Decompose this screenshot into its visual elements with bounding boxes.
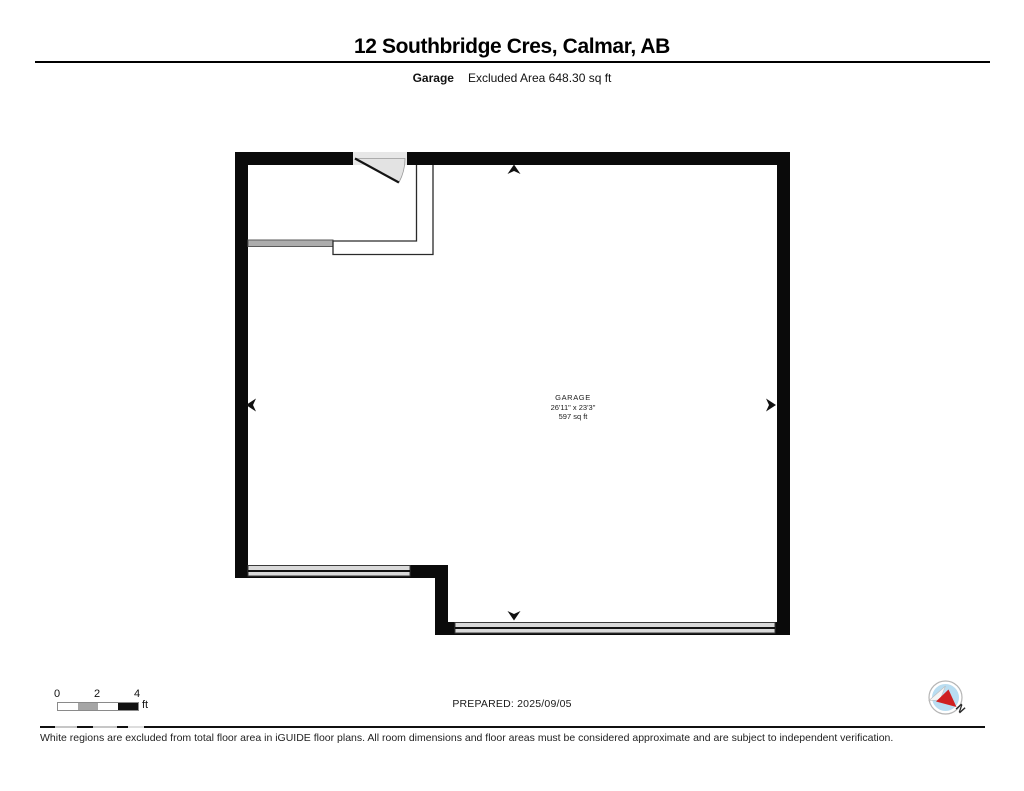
room-dimensions: 26'11" x 23'3" xyxy=(493,403,653,413)
dimension-arrow-down-icon xyxy=(508,611,521,621)
dimension-arrow-up-icon xyxy=(508,165,521,175)
windows xyxy=(248,566,775,634)
half-wall xyxy=(248,240,333,247)
wall-top-right xyxy=(407,152,790,165)
disclaimer-text: White regions are excluded from total fl… xyxy=(40,732,990,744)
watermark-patch xyxy=(128,726,144,728)
partition-outline xyxy=(333,165,433,255)
wall-right xyxy=(777,152,790,635)
watermark-patch xyxy=(93,726,117,728)
door xyxy=(353,152,407,183)
dimension-arrow-right-icon xyxy=(766,399,776,412)
wall-top-left xyxy=(235,152,353,165)
room-area: 597 sq ft xyxy=(493,412,653,422)
prepared-date: PREPARED: 2025/09/05 xyxy=(0,698,1024,710)
wall-left xyxy=(235,152,248,578)
footer-divider xyxy=(40,726,985,728)
room-name: GARAGE xyxy=(493,393,653,403)
room-label: GARAGE 26'11" x 23'3" 597 sq ft xyxy=(493,393,653,422)
floorplan-page: 12 Southbridge Cres, Calmar, AB GarageEx… xyxy=(0,0,1024,791)
watermark-patch xyxy=(55,726,77,728)
